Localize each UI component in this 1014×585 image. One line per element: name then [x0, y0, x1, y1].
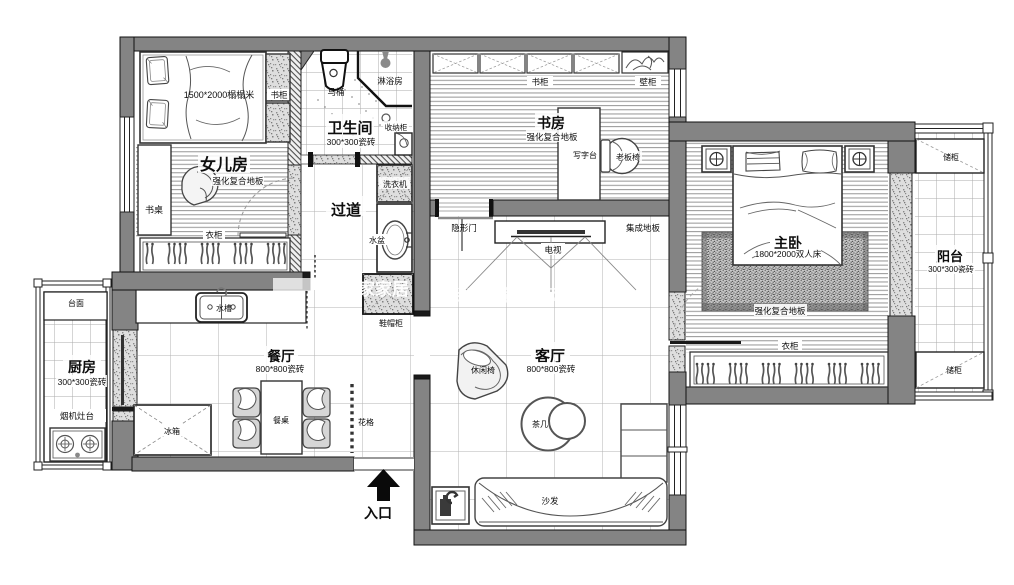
svg-text:衣柜: 衣柜 [205, 230, 223, 240]
svg-text:老板椅: 老板椅 [616, 152, 640, 162]
svg-text:强化复合地板: 强化复合地板 [754, 306, 806, 316]
svg-text:台面: 台面 [68, 298, 84, 308]
svg-text:电视: 电视 [544, 245, 562, 255]
svg-text:厨房: 厨房 [68, 359, 96, 375]
svg-text:餐桌: 餐桌 [273, 415, 289, 425]
svg-text:烟机灶台: 烟机灶台 [60, 411, 94, 421]
svg-text:储柜: 储柜 [943, 152, 959, 162]
svg-text:阳台: 阳台 [937, 249, 963, 264]
svg-text:马桶: 马桶 [327, 87, 344, 97]
svg-text:写字台: 写字台 [573, 150, 597, 160]
svg-text:花格: 花格 [358, 417, 374, 427]
svg-text:储柜: 储柜 [946, 365, 962, 375]
svg-text:1800*2000双人床: 1800*2000双人床 [755, 249, 822, 259]
svg-text:集成地板: 集成地板 [626, 223, 661, 233]
svg-text:我爱我家家居网: 我爱我家家居网 [450, 286, 562, 305]
svg-text:300*300瓷砖: 300*300瓷砖 [58, 377, 107, 387]
svg-text:书房: 书房 [537, 115, 565, 131]
svg-text:沙发: 沙发 [541, 496, 559, 506]
svg-text:800*800瓷砖: 800*800瓷砖 [527, 364, 576, 374]
svg-text:书桌: 书桌 [145, 204, 163, 215]
svg-text:茶几: 茶几 [532, 419, 548, 429]
svg-text:水盆: 水盆 [369, 235, 385, 245]
svg-text:1500*2000榻榻米: 1500*2000榻榻米 [184, 89, 255, 100]
svg-text:过道: 过道 [331, 201, 361, 219]
svg-text:冰箱: 冰箱 [164, 426, 180, 436]
svg-text:书柜: 书柜 [270, 90, 288, 100]
svg-text:书柜: 书柜 [531, 77, 549, 87]
svg-text:隐形门: 隐形门 [451, 223, 477, 233]
svg-text:强化复合地板: 强化复合地板 [526, 132, 578, 142]
svg-text:收纳柜: 收纳柜 [385, 122, 408, 132]
svg-text:女儿房: 女儿房 [200, 155, 248, 174]
svg-text:水槽: 水槽 [216, 303, 232, 313]
svg-text:卫生间: 卫生间 [327, 119, 372, 137]
svg-text:洗衣机: 洗衣机 [383, 179, 407, 189]
svg-text:入口: 入口 [364, 505, 392, 521]
svg-text:鞋帽柜: 鞋帽柜 [379, 318, 403, 328]
svg-text:淋浴房: 淋浴房 [377, 76, 403, 86]
svg-text:衣柜: 衣柜 [781, 341, 799, 351]
svg-text:强化复合地板: 强化复合地板 [212, 176, 264, 186]
svg-text:餐厅: 餐厅 [267, 348, 295, 364]
svg-text:300*300瓷砖: 300*300瓷砖 [928, 264, 974, 274]
svg-text:800*800瓷砖: 800*800瓷砖 [256, 364, 305, 374]
svg-text:300*300瓷砖: 300*300瓷砖 [327, 137, 376, 147]
svg-text:家家居: 家家居 [358, 279, 409, 299]
svg-text:休闲椅: 休闲椅 [471, 365, 495, 375]
svg-text:壁柜: 壁柜 [639, 77, 657, 87]
